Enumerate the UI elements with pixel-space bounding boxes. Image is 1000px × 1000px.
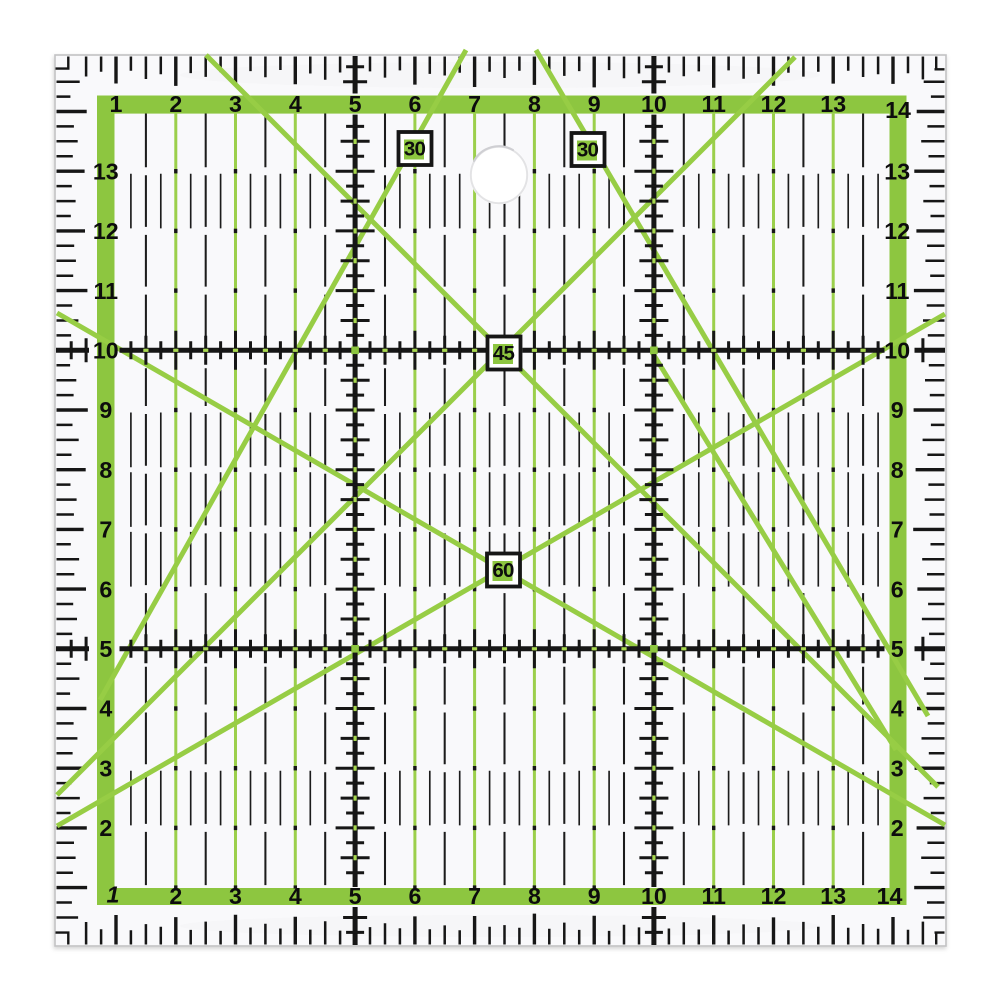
svg-text:9: 9 (99, 397, 112, 423)
svg-text:11: 11 (885, 278, 910, 304)
svg-text:10: 10 (641, 91, 667, 117)
svg-text:2: 2 (169, 91, 182, 117)
svg-text:6: 6 (99, 576, 112, 602)
svg-text:1: 1 (110, 91, 123, 117)
svg-text:2: 2 (891, 815, 904, 841)
svg-text:11: 11 (701, 91, 726, 117)
svg-text:2: 2 (99, 815, 112, 841)
svg-text:9: 9 (891, 397, 904, 423)
svg-text:4: 4 (99, 696, 112, 722)
svg-text:12: 12 (761, 883, 787, 909)
svg-text:14: 14 (885, 97, 911, 123)
svg-text:11: 11 (701, 883, 726, 909)
svg-text:12: 12 (761, 91, 787, 117)
svg-text:12: 12 (884, 218, 910, 244)
svg-text:13: 13 (884, 158, 910, 184)
svg-text:7: 7 (468, 91, 481, 117)
svg-text:8: 8 (528, 883, 541, 909)
svg-text:5: 5 (349, 91, 362, 117)
svg-text:12: 12 (93, 218, 119, 244)
svg-text:1: 1 (107, 882, 120, 908)
svg-text:6: 6 (408, 91, 421, 117)
svg-text:8: 8 (528, 91, 541, 117)
svg-text:13: 13 (93, 158, 119, 184)
svg-text:13: 13 (820, 91, 846, 117)
svg-text:5: 5 (891, 636, 904, 662)
svg-text:5: 5 (349, 883, 362, 909)
svg-text:3: 3 (99, 755, 112, 781)
svg-text:14: 14 (877, 883, 903, 909)
svg-text:10: 10 (641, 883, 667, 909)
svg-text:45: 45 (493, 342, 515, 365)
svg-text:6: 6 (408, 883, 421, 909)
svg-text:9: 9 (588, 91, 601, 117)
svg-text:6: 6 (891, 576, 904, 602)
svg-text:60: 60 (492, 559, 514, 582)
svg-text:13: 13 (820, 883, 846, 909)
svg-text:9: 9 (588, 883, 601, 909)
svg-text:10: 10 (93, 338, 119, 364)
svg-text:30: 30 (577, 139, 599, 162)
svg-text:11: 11 (94, 278, 119, 304)
svg-text:3: 3 (229, 91, 242, 117)
svg-text:8: 8 (99, 457, 112, 483)
svg-text:5: 5 (99, 636, 112, 662)
svg-text:4: 4 (289, 883, 302, 909)
svg-text:3: 3 (229, 883, 242, 909)
svg-text:10: 10 (884, 338, 910, 364)
svg-text:2: 2 (169, 883, 182, 909)
svg-text:4: 4 (891, 696, 904, 722)
svg-text:7: 7 (468, 883, 481, 909)
svg-text:8: 8 (891, 457, 904, 483)
svg-text:4: 4 (289, 91, 302, 117)
svg-text:30: 30 (404, 138, 426, 161)
svg-text:7: 7 (99, 517, 112, 543)
svg-text:7: 7 (891, 517, 904, 543)
svg-text:3: 3 (891, 755, 904, 781)
